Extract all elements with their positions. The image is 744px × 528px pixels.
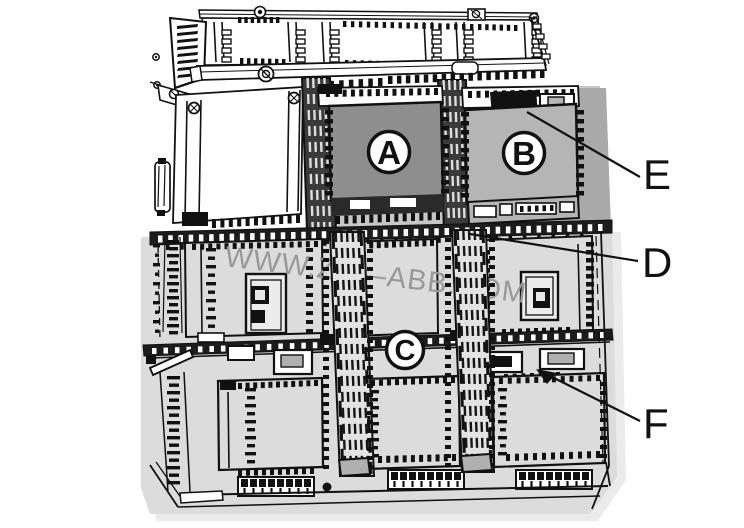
svg-text:B: B (512, 135, 536, 172)
svg-text:E: E (643, 151, 671, 198)
svg-text:C: C (395, 335, 416, 367)
svg-text:D: D (642, 239, 672, 286)
svg-text:A: A (377, 134, 401, 171)
svg-text:F: F (643, 400, 669, 447)
